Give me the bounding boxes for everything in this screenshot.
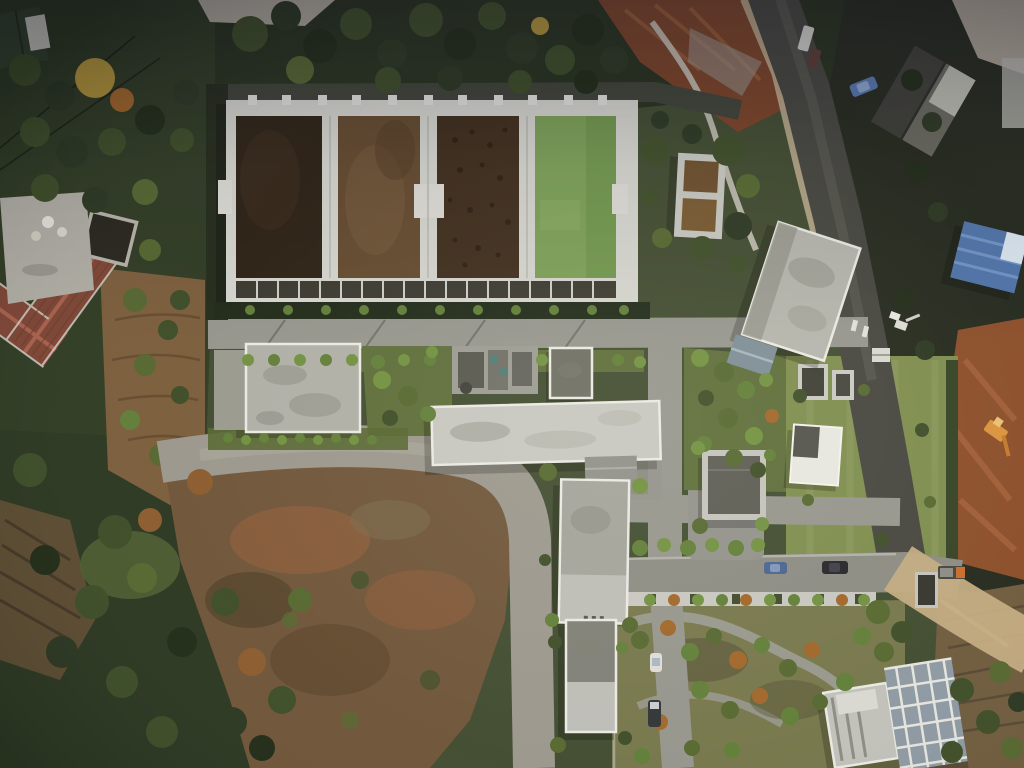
small-dark-building-se bbox=[915, 572, 938, 608]
equipment-platform bbox=[452, 346, 538, 394]
car-blue-south bbox=[764, 562, 787, 574]
pickup-dark-east-lane bbox=[648, 700, 661, 727]
car-white-east-lane bbox=[650, 653, 662, 672]
building-west bbox=[214, 344, 360, 438]
hedge-south bbox=[214, 302, 650, 319]
tank-2 bbox=[681, 198, 717, 232]
white-lawn-building bbox=[784, 424, 842, 492]
suv-dark-south bbox=[822, 561, 848, 574]
basin-3 bbox=[437, 116, 519, 278]
mid-building bbox=[551, 479, 630, 626]
small-dark-hut bbox=[546, 348, 592, 404]
aerial-photo bbox=[0, 0, 1024, 768]
tank-1 bbox=[683, 160, 719, 193]
channel-row bbox=[236, 281, 616, 298]
farm-yard bbox=[0, 192, 94, 304]
south-building bbox=[558, 620, 616, 740]
truck-orange-se bbox=[938, 566, 965, 579]
treatment-basin-complex bbox=[206, 84, 650, 320]
square-tanks bbox=[666, 152, 726, 239]
